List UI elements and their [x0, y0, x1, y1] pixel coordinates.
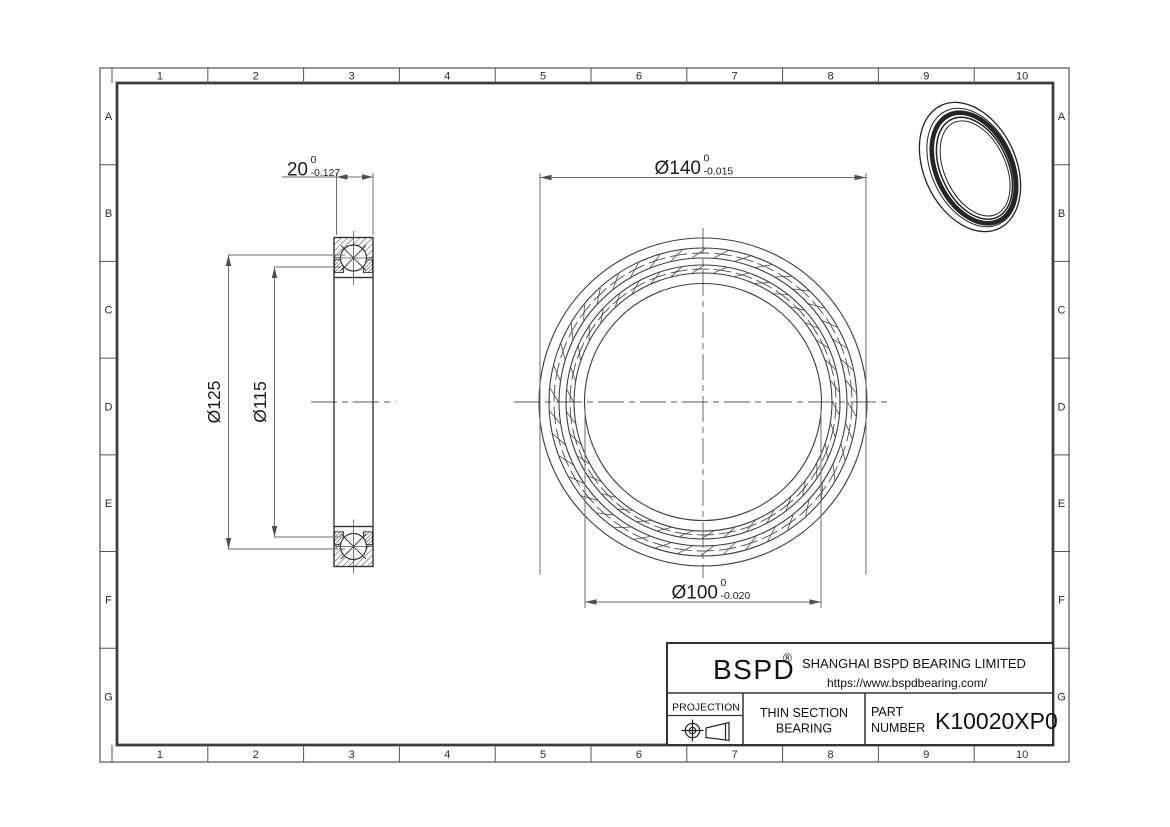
grid-col-label-bottom: 1 [157, 749, 163, 761]
dim-width-tol-lower: -0.127 [311, 167, 341, 179]
grid-col-label-top: 5 [540, 71, 546, 83]
dim-outer-dia-tol-lower: -0.015 [704, 166, 734, 178]
front-view: Ø140 0 -0.015 Ø100 0 -0.020 [514, 153, 892, 609]
grid-col-label-bottom: 6 [636, 749, 642, 761]
section-bottom-block [334, 520, 373, 574]
grid-col-label-top: 9 [923, 71, 929, 83]
grid-col-label-top: 1 [157, 71, 163, 83]
grid-row-label-right: D [1058, 401, 1066, 413]
part-label-line1: PART [871, 705, 904, 719]
grid-row-label-left: F [105, 595, 112, 607]
grid-row-label-left: G [104, 691, 113, 703]
projection-label: PROJECTION [672, 702, 740, 714]
drawing-sheet: 1122334455667788991010AABBCCDDEEFFGG [0, 0, 1170, 827]
grid-row-label-left: B [105, 208, 112, 220]
grid-row-label-right: G [1057, 691, 1066, 703]
dim-inner-race-value: Ø115 [250, 381, 270, 423]
bearing-engineering-drawing: 1122334455667788991010AABBCCDDEEFFGG [0, 0, 1170, 827]
grid-col-label-bottom: 5 [540, 749, 546, 761]
dim-width-tol-upper: 0 [311, 154, 317, 166]
grid-row-label-left: A [105, 111, 113, 123]
grid-col-label-bottom: 9 [923, 749, 929, 761]
grid-row-label-right: F [1058, 595, 1065, 607]
grid-col-label-top: 10 [1016, 71, 1028, 83]
grid-col-label-bottom: 3 [348, 749, 354, 761]
grid-row-label-left: E [105, 498, 112, 510]
grid-col-label-bottom: 2 [253, 749, 259, 761]
company-website: https://www.bspdbearing.com/ [827, 676, 988, 690]
isometric-view [900, 86, 1041, 248]
grid-col-label-bottom: 4 [444, 749, 450, 761]
section-top-block [334, 231, 373, 285]
grid-col-label-bottom: 8 [827, 749, 833, 761]
grid-col-label-top: 7 [732, 71, 738, 83]
dim-outer-dia-value: Ø140 [655, 158, 701, 179]
grid-col-label-top: 8 [827, 71, 833, 83]
grid-col-label-top: 2 [253, 71, 259, 83]
grid-row-label-right: A [1058, 111, 1066, 123]
product-type-line1: THIN SECTION [760, 706, 848, 720]
dim-width: 20 0 -0.127 [282, 154, 373, 235]
grid-col-label-bottom: 7 [732, 749, 738, 761]
product-type-line2: BEARING [776, 722, 832, 736]
section-view: 20 0 -0.127 Ø125 Ø115 [204, 154, 396, 574]
grid-col-label-top: 3 [348, 71, 354, 83]
title-block: BSPD ® SHANGHAI BSPD BEARING LIMITED htt… [667, 643, 1058, 745]
registered-mark: ® [783, 651, 792, 665]
part-number: K10020XP0 [935, 708, 1058, 734]
grid-row-label-right: E [1058, 498, 1065, 510]
dim-bore-dia-value: Ø100 [672, 583, 718, 604]
dim-width-value: 20 [287, 160, 308, 181]
dim-outer-race-value: Ø125 [204, 381, 224, 424]
grid-row-label-right: C [1058, 305, 1066, 317]
grid-col-label-bottom: 10 [1016, 749, 1028, 761]
grid-row-label-left: C [105, 305, 113, 317]
part-label-line2: NUMBER [871, 721, 925, 735]
grid-row-label-right: B [1058, 208, 1065, 220]
dim-bore-dia-tol-lower: -0.020 [721, 590, 751, 602]
grid-row-label-left: D [105, 401, 113, 413]
grid-col-label-top: 6 [636, 71, 642, 83]
dim-outer-dia-tol-upper: 0 [704, 153, 710, 165]
company-name: SHANGHAI BSPD BEARING LIMITED [802, 656, 1026, 671]
dim-bore-dia-tol-upper: 0 [721, 577, 727, 589]
grid-col-label-top: 4 [444, 71, 450, 83]
